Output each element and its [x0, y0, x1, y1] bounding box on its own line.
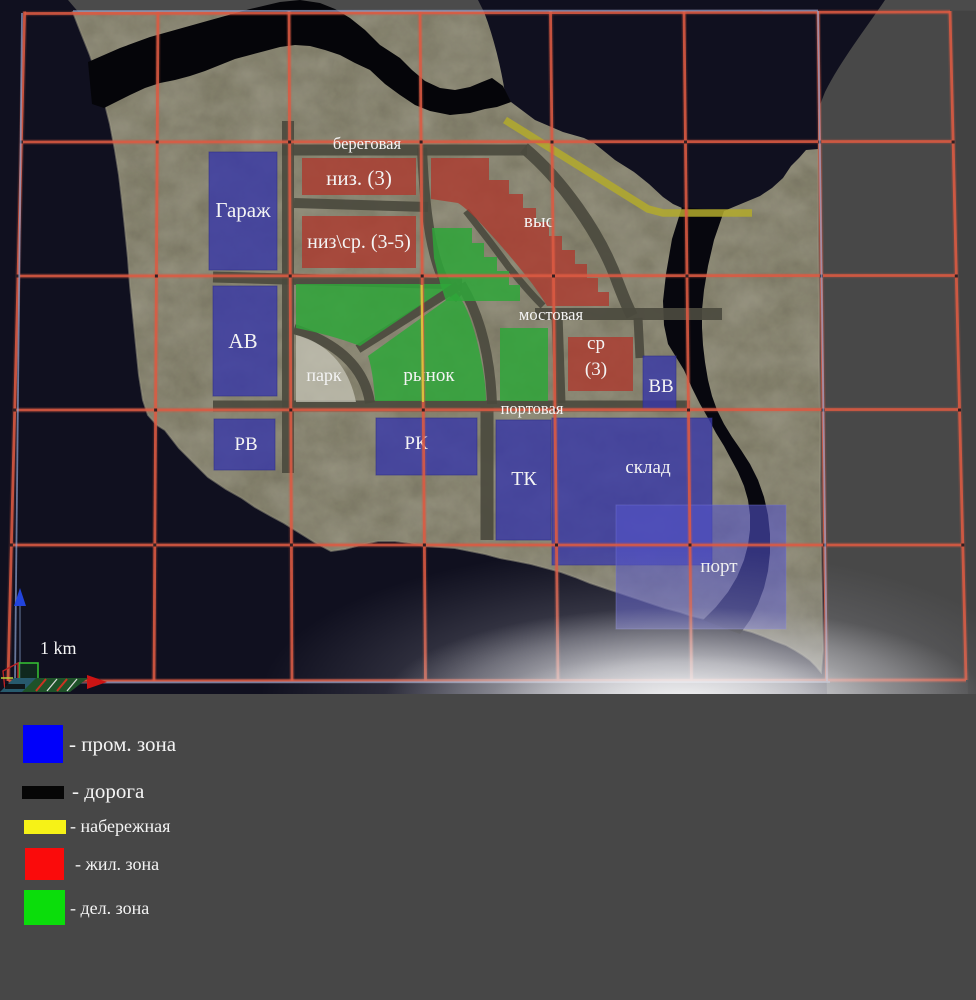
svg-text:РВ: РВ: [234, 434, 257, 455]
svg-text:- жил. зона: - жил. зона: [75, 854, 159, 874]
svg-text:- дорога: - дорога: [72, 779, 145, 803]
svg-text:- дел. зона: - дел. зона: [70, 898, 149, 918]
svg-text:склад: склад: [625, 457, 671, 478]
svg-text:- пром. зона: - пром. зона: [69, 732, 177, 756]
svg-text:портовая: портовая: [501, 399, 564, 418]
svg-text:(3): (3): [585, 359, 607, 380]
svg-text:1 km: 1 km: [40, 638, 77, 658]
svg-text:низ. (3): низ. (3): [326, 166, 392, 190]
svg-text:АВ: АВ: [228, 329, 257, 353]
svg-text:ТК: ТК: [511, 468, 537, 490]
svg-text:Гараж: Гараж: [215, 198, 271, 222]
svg-text:мостовая: мостовая: [519, 305, 584, 324]
svg-text:низ\ср. (3-5): низ\ср. (3-5): [307, 231, 411, 253]
svg-text:парк: парк: [306, 365, 342, 385]
svg-text:ср: ср: [587, 333, 605, 354]
svg-text:выс: выс: [524, 211, 554, 232]
svg-text:- набережная: - набережная: [70, 816, 170, 836]
svg-text:рынок: рынок: [403, 365, 455, 386]
svg-text:ВВ: ВВ: [648, 376, 673, 397]
svg-text:береговая: береговая: [333, 134, 402, 153]
